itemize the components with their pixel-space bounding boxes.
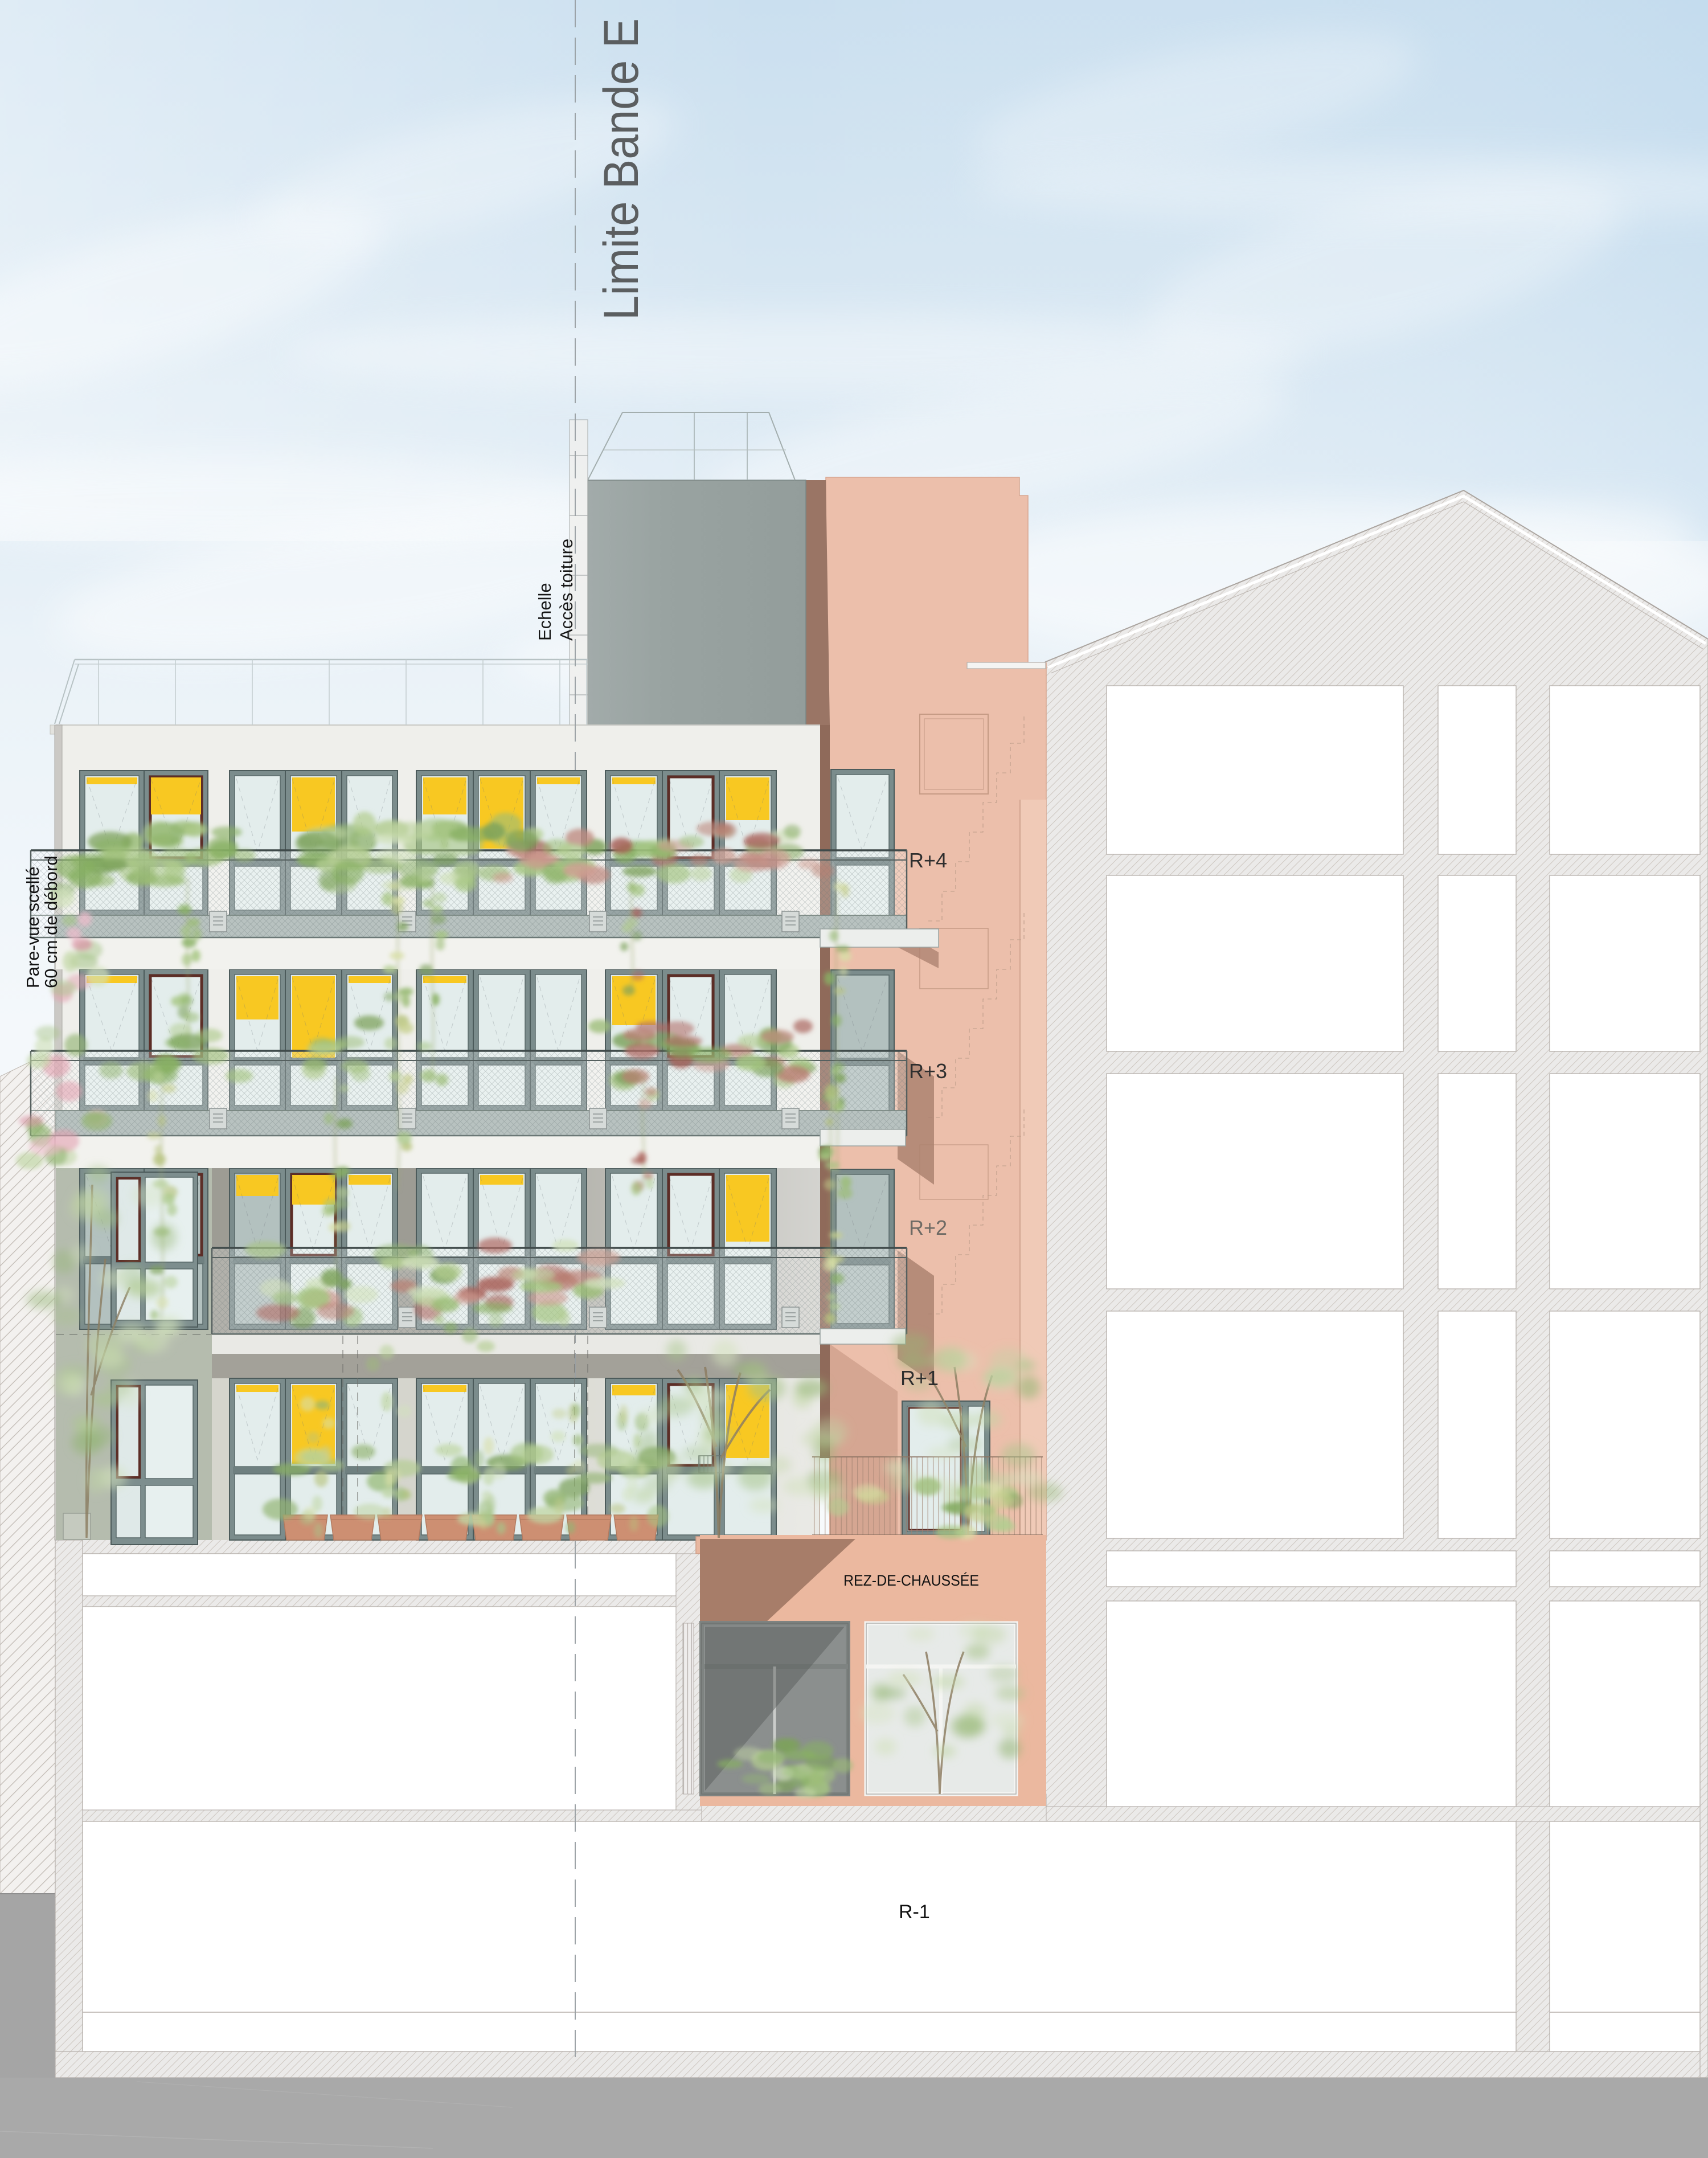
svg-text:Limite Bande E: Limite Bande E bbox=[594, 18, 649, 320]
svg-text:Accès toiture: Accès toiture bbox=[556, 539, 576, 641]
svg-text:R+3: R+3 bbox=[909, 1059, 947, 1083]
svg-text:R+1: R+1 bbox=[900, 1366, 939, 1390]
svg-text:60 cm de débord: 60 cm de débord bbox=[41, 855, 61, 988]
svg-text:Pare-vue scellé: Pare-vue scellé bbox=[23, 866, 43, 988]
svg-text:Echelle: Echelle bbox=[535, 583, 555, 641]
svg-text:R+4: R+4 bbox=[909, 849, 947, 872]
svg-text:R-1: R-1 bbox=[899, 1901, 930, 1923]
svg-text:R+2: R+2 bbox=[909, 1216, 947, 1239]
svg-text:REZ-DE-CHAUSSÉE: REZ-DE-CHAUSSÉE bbox=[843, 1572, 979, 1589]
